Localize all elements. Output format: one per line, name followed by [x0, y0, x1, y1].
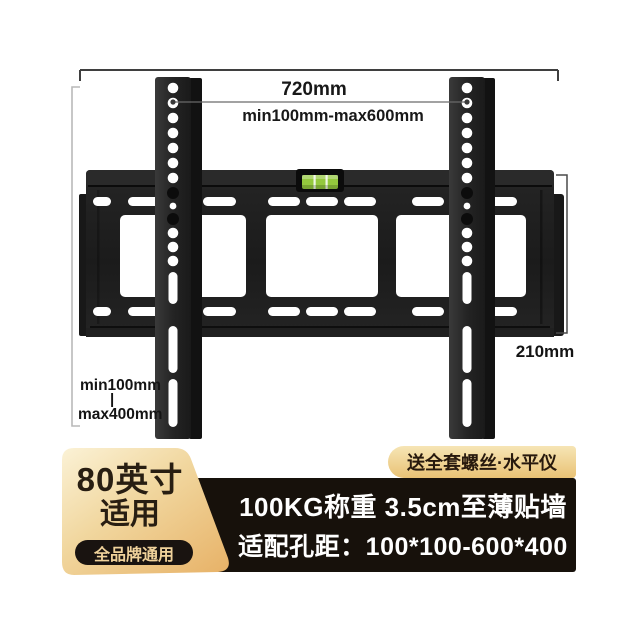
size-badge-line2: 适用 [62, 498, 198, 533]
top-width-label: 720mm [281, 79, 347, 100]
product-image: 720mm min100mm-max600mm min100mm | max40… [0, 0, 640, 640]
info-bar-line1: 100KG称重 3.5cm至薄贴墙 [239, 487, 567, 524]
info-bar-line2: 适配孔距：100*100-600*400 [238, 527, 568, 563]
size-badge-sub-pill-label: 全品牌通用 [94, 541, 174, 565]
right-tv-rail [449, 77, 495, 439]
spirit-level-icon [296, 169, 344, 192]
hole-height-max-label: max400mm [78, 406, 162, 423]
dimension-hole-width [170, 99, 469, 104]
left-tv-rail [155, 77, 202, 439]
hole-height-min-label: min100mm [80, 377, 161, 394]
plate-height-label: 210mm [516, 342, 575, 361]
size-badge-sub-pill: 全品牌通用 [75, 540, 193, 565]
dimension-hole-height [72, 87, 80, 426]
size-badge-line1: 80英寸 [62, 463, 198, 498]
gift-pill: 送全套螺丝·水平仪 [388, 446, 576, 478]
gift-pill-label: 送全套螺丝·水平仪 [407, 449, 557, 475]
hole-width-label: min100mm-max600mm [242, 107, 424, 125]
info-bar: 100KG称重 3.5cm至薄贴墙 适配孔距：100*100-600*400 [196, 478, 576, 572]
